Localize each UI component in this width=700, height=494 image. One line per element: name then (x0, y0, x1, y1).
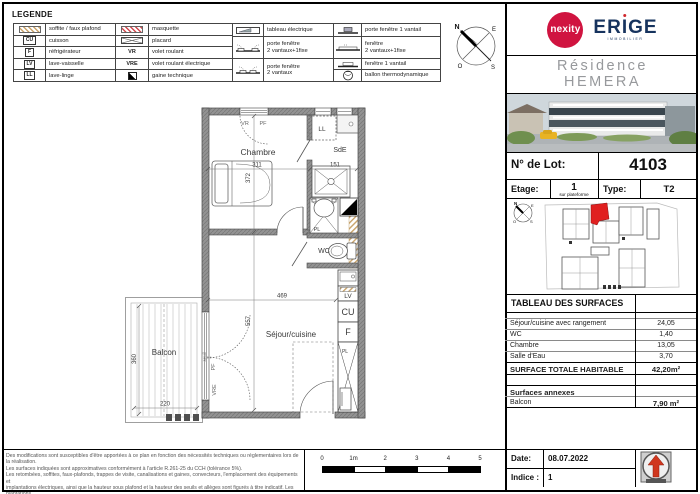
legend-label: volet roulant électrique (149, 59, 233, 71)
scale-tick: 2 (384, 456, 387, 462)
technical-duct (340, 198, 358, 216)
legend-col3: tableau électrique porte fenêtre 2 vanta… (232, 23, 334, 82)
legend-label: réfrigérateur (46, 47, 116, 59)
compass-e: E (492, 27, 496, 33)
surface-total-value: 42,20m² (637, 365, 695, 374)
legend-label: fenêtre 1 vantail (362, 59, 441, 70)
room-sejour: Séjour/cuisine (266, 330, 317, 339)
legend-label: ballon thermodynamique (362, 70, 441, 82)
logo-row: nexity ERIGE IMMOBILIER (507, 4, 698, 55)
masquette-icon (121, 26, 143, 33)
legend-label: tableau électrique (264, 24, 334, 37)
surface-row-label: Séjour/cuisine avec rangement (510, 320, 606, 327)
legend-label: porte fenêtre 1 vantail (362, 24, 441, 37)
surface-row-label: Chambre (510, 342, 539, 349)
label-pf-balcony: PF (211, 363, 217, 371)
nexity-logo: nexity (547, 12, 583, 48)
lot-value: 4103 (598, 155, 698, 175)
dim-360: 360 (132, 353, 138, 364)
label-cu: CU (342, 307, 355, 317)
porte-fenetre-2v-icon (235, 64, 261, 76)
date-value: 08.07.2022 (548, 454, 588, 463)
porte-fenetre-2v1f-icon (235, 42, 261, 54)
disclaimer-line: implantations électriques, ainsi que la … (6, 485, 300, 494)
etage-label: Etage: (511, 184, 539, 194)
label-vr: VR (241, 121, 249, 127)
residence-line1: Résidence (557, 58, 648, 74)
lave-vaisselle-icon: LV (24, 60, 35, 69)
dim-469: 469 (277, 294, 288, 300)
dim-372: 372 (246, 172, 252, 183)
architect-logo (640, 451, 672, 485)
legend-label: porte fenêtre 2 vantaux+1fixe (264, 37, 334, 59)
erige-logo: ERIGE IMMOBILIER (593, 18, 657, 42)
disclaimer-line: Des modifications sont susceptibles d'êt… (6, 453, 300, 466)
legend-label: placard (149, 36, 233, 48)
room-balcon: Balcon (152, 348, 176, 357)
legend-label: porte fenêtre 2 vantaux (264, 59, 334, 82)
site-compass-e: E (531, 203, 534, 208)
legend-label: gaine technique (149, 70, 233, 82)
legend-col1: soffite / faux plafond CU cuisson F réfr… (13, 23, 116, 82)
kitchen-units (338, 270, 358, 412)
scale-tick: 0 (320, 456, 323, 462)
dim-151: 151 (330, 163, 341, 169)
volet-roulant-icon: VR (128, 49, 136, 55)
type-label: Type: (603, 184, 626, 194)
vanity-unit (337, 115, 358, 133)
site-plan: N E O S (507, 199, 698, 294)
label-ll: LL (318, 126, 326, 133)
label-pl-sde: PL (314, 227, 321, 233)
legend-title: LEGENDE (12, 10, 53, 19)
erige-text-i: I (622, 17, 628, 38)
dim-311: 311 (252, 163, 262, 169)
plan-sheet: VR PF Chambre 311 372 SdE 151 LL PL WC L… (0, 0, 700, 494)
dim-220: 220 (160, 402, 171, 408)
etage-note: sur plateforme (550, 192, 598, 197)
type-value: T2 (640, 184, 698, 195)
legend-col2: masquette placard VR volet roulant VRE v… (115, 23, 233, 82)
soffit-icon (19, 26, 41, 33)
disclaimer: Des modifications sont susceptibles d'êt… (6, 453, 300, 494)
scale-tick: 3 (415, 456, 418, 462)
volet-roulant-electrique-icon: VRE (126, 61, 137, 67)
refrigerateur-icon: F (25, 48, 33, 57)
fenetre-1v-icon (337, 60, 359, 69)
label-pl-kitchen: PL (342, 349, 348, 355)
label-seuil: seuil (202, 352, 207, 361)
furniture-dashed (293, 342, 333, 412)
erige-subtitle: IMMOBILIER (608, 38, 644, 41)
label-f: F (345, 327, 351, 337)
annexe-row-label: Balcon (510, 399, 531, 406)
tableau-electrique-icon (236, 26, 260, 35)
surface-row-label: WC (510, 331, 522, 338)
shower (312, 166, 350, 197)
surface-row-value: 3,70 (637, 353, 695, 360)
label-pf-top: PF (259, 121, 267, 127)
balcony-slab-marks (166, 414, 199, 421)
lave-linge-icon: LL (24, 71, 35, 80)
erige-text-right: GE (628, 18, 657, 37)
legend-label: soffite / faux plafond (46, 24, 116, 36)
surfaces-title: TABLEAU DES SURFACES (511, 298, 623, 308)
scale-tick: 4 (447, 456, 450, 462)
erige-text-left: ER (593, 18, 621, 37)
residence-name: Résidence HEMERA (507, 56, 698, 92)
compass-s: S (491, 65, 495, 71)
placard-icon (121, 37, 143, 44)
legend-label: cuisson (46, 36, 116, 48)
compass-o: O (458, 64, 463, 70)
surface-row-value: 13,05 (637, 342, 695, 349)
legend-label: lave-linge (46, 70, 116, 82)
label-lv: LV (344, 293, 352, 300)
room-sde: SdE (333, 147, 347, 154)
room-chambre: Chambre (241, 147, 276, 157)
erige-red-dot-icon (623, 14, 627, 18)
legend-label: masquette (149, 24, 233, 36)
porte-fenetre-1v-icon (337, 25, 359, 35)
room-wc: WC (318, 248, 330, 255)
indice-value: 1 (548, 473, 552, 482)
surface-row-label: Salle d'Eau (510, 353, 545, 360)
legend-label: fenêtre 2 vantaux+1fixe (362, 37, 441, 59)
lot-label: N° de Lot: (511, 159, 565, 171)
gaine-technique-icon (128, 72, 137, 80)
indice-label: Indice : (511, 473, 539, 482)
fenetre-2v1f-icon (335, 43, 361, 53)
scale-tick: 5 (478, 456, 481, 462)
surface-row-value: 1,40 (637, 331, 695, 338)
site-compass-s: S (530, 219, 533, 224)
surface-row-value: 24,05 (637, 320, 695, 327)
dim-557: 557 (246, 315, 252, 326)
ballon-thermodynamique-icon (342, 70, 354, 81)
label-vre: VRE (212, 384, 218, 396)
disclaimer-line: Les retombées, soffites, faux-plafonds, … (6, 472, 300, 485)
legend-label: volet roulant (149, 47, 233, 59)
scale-tick: 1m (349, 456, 357, 462)
site-compass-o: O (513, 219, 516, 224)
compass-n: N (454, 24, 459, 31)
legend-label: lave-vaisselle (46, 59, 116, 71)
compass-rose: N E O S (454, 24, 496, 71)
cuisson-icon: CU (23, 36, 35, 45)
site-compass-n: N (514, 201, 517, 206)
legend-col4: porte fenêtre 1 vantail fenêtre 2 vantau… (333, 23, 441, 82)
toilet (329, 243, 357, 259)
residence-line2: HEMERA (564, 74, 641, 90)
building-photo (507, 94, 698, 152)
surface-total-label: SURFACE TOTALE HABITABLE (510, 365, 623, 374)
bed (212, 161, 272, 206)
date-label: Date: (511, 454, 531, 463)
